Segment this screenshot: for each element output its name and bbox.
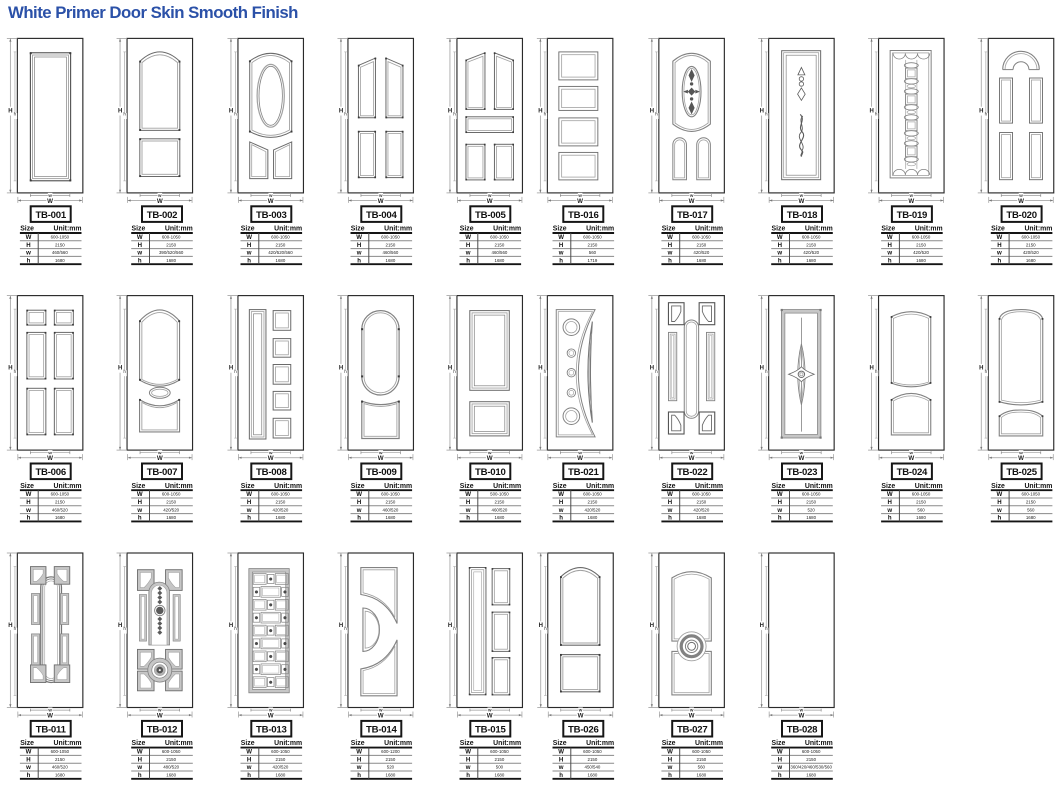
svg-text:H: H [357, 499, 361, 506]
svg-text:H: H [448, 108, 452, 114]
svg-text:Unit:mm: Unit:mm [695, 740, 723, 747]
svg-text:w: w [25, 764, 31, 771]
svg-text:2150: 2150 [166, 500, 176, 505]
svg-text:600-1050: 600-1050 [802, 492, 821, 497]
svg-text:Size: Size [991, 226, 1005, 233]
svg-text:Size: Size [241, 740, 255, 747]
svg-text:h: h [344, 112, 347, 117]
svg-text:H: H [466, 499, 470, 506]
svg-text:Unit:mm: Unit:mm [695, 226, 723, 233]
svg-text:W: W [246, 491, 252, 498]
svg-text:w: w [246, 764, 252, 771]
svg-text:W: W [997, 234, 1003, 241]
svg-text:1680: 1680 [696, 515, 706, 520]
svg-text:w: w [558, 507, 564, 514]
svg-text:h: h [888, 257, 892, 264]
svg-text:600-1050: 600-1050 [271, 492, 290, 497]
svg-text:420/520: 420/520 [803, 250, 819, 255]
svg-text:600-1050: 600-1050 [1021, 492, 1040, 497]
svg-text:Size: Size [241, 226, 255, 233]
svg-text:H: H [138, 242, 142, 249]
svg-text:w: w [356, 507, 362, 514]
svg-text:600-1050: 600-1050 [1021, 235, 1040, 240]
svg-text:h: h [655, 112, 658, 117]
svg-text:H: H [26, 499, 30, 506]
svg-text:2150: 2150 [588, 500, 598, 505]
svg-text:h: h [466, 257, 470, 264]
svg-text:H: H [760, 366, 764, 372]
svg-text:H: H [247, 756, 251, 763]
svg-text:w: w [558, 764, 564, 771]
svg-text:h: h [247, 515, 251, 522]
svg-text:Size: Size [662, 226, 676, 233]
svg-text:2150: 2150 [55, 757, 65, 762]
svg-text:H: H [138, 499, 142, 506]
svg-text:1680: 1680 [166, 258, 176, 263]
svg-text:600-1050: 600-1050 [381, 492, 400, 497]
svg-text:W: W [356, 234, 362, 241]
svg-text:h: h [138, 515, 142, 522]
svg-text:w: w [667, 764, 673, 771]
svg-text:460/520: 460/520 [492, 507, 508, 512]
svg-text:Unit:mm: Unit:mm [493, 740, 521, 747]
svg-text:Unit:mm: Unit:mm [274, 226, 302, 233]
svg-text:420/520/560: 420/520/560 [268, 250, 293, 255]
svg-text:Unit:mm: Unit:mm [165, 483, 193, 490]
svg-text:W: W [558, 234, 564, 241]
svg-text:W: W [268, 713, 274, 720]
svg-text:Unit:mm: Unit:mm [805, 226, 833, 233]
svg-text:W: W [47, 198, 53, 205]
svg-text:h: h [544, 112, 547, 117]
svg-text:1680: 1680 [386, 515, 396, 520]
svg-text:W: W [356, 491, 362, 498]
svg-text:H: H [979, 366, 983, 372]
svg-text:H: H [668, 756, 672, 763]
svg-text:2150: 2150 [588, 757, 598, 762]
svg-text:Size: Size [662, 740, 676, 747]
svg-text:h: h [14, 369, 17, 374]
svg-text:h: h [875, 369, 878, 374]
svg-text:460/560: 460/560 [52, 250, 68, 255]
svg-text:W: W [487, 713, 493, 720]
svg-text:H: H [466, 242, 470, 249]
svg-text:H: H [778, 242, 782, 249]
svg-text:w: w [356, 250, 362, 257]
svg-text:W: W [26, 749, 32, 756]
svg-text:1680: 1680 [1026, 515, 1036, 520]
svg-text:W: W [268, 198, 274, 205]
svg-text:H: H [247, 242, 251, 249]
svg-text:w: w [776, 764, 782, 771]
svg-text:H: H [448, 623, 452, 629]
svg-text:TB-009: TB-009 [366, 467, 397, 478]
svg-text:2150: 2150 [276, 757, 286, 762]
svg-text:600-1050: 600-1050 [802, 749, 821, 754]
svg-text:460/560: 460/560 [492, 250, 508, 255]
svg-text:1680: 1680 [916, 515, 926, 520]
svg-text:h: h [27, 515, 31, 522]
svg-text:H: H [538, 108, 542, 114]
svg-text:H: H [887, 499, 891, 506]
svg-text:h: h [765, 626, 768, 631]
svg-text:Size: Size [132, 740, 146, 747]
svg-text:520: 520 [387, 765, 395, 770]
svg-text:H: H [357, 756, 361, 763]
svg-text:500: 500 [496, 765, 504, 770]
svg-text:1680: 1680 [55, 515, 65, 520]
svg-text:w: w [776, 250, 782, 257]
svg-text:H: H [247, 499, 251, 506]
svg-text:W: W [356, 749, 362, 756]
svg-text:H: H [559, 242, 563, 249]
svg-text:w: w [246, 507, 252, 514]
svg-text:W: W [487, 198, 493, 205]
svg-text:480/520: 480/520 [163, 765, 179, 770]
svg-text:2150: 2150 [386, 500, 396, 505]
svg-text:h: h [668, 772, 672, 779]
svg-text:H: H [668, 499, 672, 506]
svg-text:2150: 2150 [588, 242, 598, 247]
svg-text:420/520: 420/520 [1023, 250, 1039, 255]
svg-text:TB-013: TB-013 [256, 724, 287, 735]
svg-text:H: H [357, 242, 361, 249]
svg-text:2150: 2150 [916, 242, 926, 247]
svg-text:H: H [229, 108, 233, 114]
svg-text:H: H [448, 366, 452, 372]
svg-text:h: h [138, 257, 142, 264]
svg-text:h: h [453, 112, 456, 117]
svg-text:h: h [453, 369, 456, 374]
svg-text:Size: Size [351, 740, 365, 747]
svg-text:TB-025: TB-025 [1006, 467, 1037, 478]
svg-text:2150: 2150 [696, 242, 706, 247]
svg-text:W: W [689, 713, 695, 720]
svg-text:TB-020: TB-020 [1006, 210, 1037, 221]
svg-text:420/520: 420/520 [693, 250, 709, 255]
svg-text:420/520: 420/520 [273, 507, 289, 512]
svg-text:H: H [887, 242, 891, 249]
svg-text:h: h [998, 515, 1002, 522]
svg-text:h: h [765, 369, 768, 374]
svg-text:W: W [577, 198, 583, 205]
svg-text:Unit:mm: Unit:mm [695, 483, 723, 490]
svg-text:h: h [778, 257, 782, 264]
svg-text:TB-003: TB-003 [256, 210, 287, 221]
svg-text:420/520: 420/520 [913, 250, 929, 255]
svg-text:390/520/560: 390/520/560 [159, 250, 184, 255]
svg-text:TB-028: TB-028 [787, 724, 818, 735]
svg-text:Size: Size [460, 740, 474, 747]
svg-text:1680: 1680 [386, 258, 396, 263]
svg-text:h: h [466, 772, 470, 779]
svg-text:Unit:mm: Unit:mm [915, 483, 943, 490]
svg-text:h: h [668, 257, 672, 264]
svg-text:600-1050: 600-1050 [692, 235, 711, 240]
svg-text:W: W [465, 491, 471, 498]
svg-text:TB-001: TB-001 [35, 210, 66, 221]
svg-text:Unit:mm: Unit:mm [274, 740, 302, 747]
svg-text:TB-021: TB-021 [568, 467, 599, 478]
svg-text:Size: Size [132, 226, 146, 233]
svg-text:h: h [985, 369, 988, 374]
svg-text:h: h [138, 772, 142, 779]
svg-text:h: h [466, 515, 470, 522]
svg-text:Unit:mm: Unit:mm [54, 226, 82, 233]
svg-text:W: W [268, 455, 274, 462]
svg-text:2150: 2150 [916, 500, 926, 505]
svg-text:w: w [886, 250, 892, 257]
svg-text:H: H [997, 242, 1001, 249]
svg-text:w: w [996, 250, 1002, 257]
svg-text:W: W [465, 749, 471, 756]
svg-text:Size: Size [772, 483, 786, 490]
svg-text:H: H [118, 108, 122, 114]
svg-text:h: h [357, 515, 361, 522]
svg-text:W: W [667, 749, 673, 756]
svg-text:w: w [886, 507, 892, 514]
svg-text:H: H [760, 108, 764, 114]
svg-text:W: W [887, 491, 893, 498]
svg-text:h: h [234, 112, 237, 117]
svg-text:h: h [357, 772, 361, 779]
svg-text:1680: 1680 [806, 258, 816, 263]
svg-text:W: W [137, 491, 143, 498]
svg-text:h: h [778, 515, 782, 522]
svg-text:W: W [137, 749, 143, 756]
svg-text:2150: 2150 [806, 757, 816, 762]
svg-text:Unit:mm: Unit:mm [915, 226, 943, 233]
svg-text:h: h [123, 112, 126, 117]
svg-text:TB-027: TB-027 [677, 724, 708, 735]
svg-text:W: W [777, 491, 783, 498]
svg-text:2150: 2150 [166, 757, 176, 762]
svg-text:TB-022: TB-022 [677, 467, 708, 478]
svg-text:w: w [136, 507, 142, 514]
svg-text:2150: 2150 [166, 242, 176, 247]
svg-text:H: H [539, 623, 543, 629]
svg-text:H: H [118, 623, 122, 629]
svg-text:TB-014: TB-014 [366, 724, 397, 735]
svg-text:W: W [137, 234, 143, 241]
svg-text:2150: 2150 [386, 242, 396, 247]
svg-text:h: h [123, 369, 126, 374]
svg-text:H: H [869, 366, 873, 372]
svg-text:w: w [465, 250, 471, 257]
svg-text:W: W [798, 455, 804, 462]
svg-text:560: 560 [589, 250, 597, 255]
svg-text:w: w [356, 764, 362, 771]
svg-text:H: H [997, 499, 1001, 506]
svg-text:W: W [667, 491, 673, 498]
svg-text:2150: 2150 [276, 242, 286, 247]
svg-text:H: H [138, 756, 142, 763]
svg-text:2150: 2150 [386, 757, 396, 762]
svg-text:Size: Size [991, 483, 1005, 490]
svg-text:W: W [157, 198, 163, 205]
svg-text:600-1050: 600-1050 [162, 235, 181, 240]
svg-text:w: w [25, 507, 31, 514]
svg-text:h: h [655, 626, 658, 631]
svg-text:W: W [777, 234, 783, 241]
svg-text:W: W [1018, 455, 1024, 462]
svg-text:W: W [997, 491, 1003, 498]
svg-text:W: W [887, 234, 893, 241]
svg-text:2150: 2150 [495, 242, 505, 247]
svg-text:h: h [234, 369, 237, 374]
svg-text:Unit:mm: Unit:mm [165, 740, 193, 747]
svg-text:600-1200: 600-1200 [381, 749, 400, 754]
svg-text:h: h [27, 772, 31, 779]
svg-text:Size: Size [351, 226, 365, 233]
svg-text:h: h [544, 369, 547, 374]
svg-text:H: H [26, 242, 30, 249]
svg-text:w: w [246, 250, 252, 257]
svg-text:W: W [798, 713, 804, 720]
svg-text:TB-016: TB-016 [568, 210, 599, 221]
svg-text:h: h [668, 515, 672, 522]
svg-text:H: H [229, 366, 233, 372]
svg-text:W: W [689, 198, 695, 205]
svg-text:1680: 1680 [495, 258, 505, 263]
svg-text:H: H [229, 623, 233, 629]
svg-text:460/520: 460/520 [383, 507, 399, 512]
svg-text:1680: 1680 [806, 515, 816, 520]
svg-text:W: W [378, 713, 384, 720]
svg-text:TB-026: TB-026 [568, 724, 599, 735]
svg-text:H: H [650, 366, 654, 372]
svg-text:Unit:mm: Unit:mm [586, 483, 614, 490]
svg-text:H: H [650, 108, 654, 114]
svg-text:h: h [123, 626, 126, 631]
svg-text:W: W [378, 198, 384, 205]
svg-text:Size: Size [772, 226, 786, 233]
svg-text:Size: Size [772, 740, 786, 747]
svg-text:W: W [558, 749, 564, 756]
svg-text:Size: Size [553, 483, 567, 490]
svg-text:360/420/460/530/560: 360/420/460/530/560 [790, 765, 832, 770]
svg-text:H: H [8, 623, 12, 629]
svg-text:600-1050: 600-1050 [583, 492, 602, 497]
svg-text:600-1050: 600-1050 [162, 749, 181, 754]
svg-text:W: W [378, 455, 384, 462]
svg-text:Size: Size [553, 740, 567, 747]
svg-text:Unit:mm: Unit:mm [805, 483, 833, 490]
svg-text:600-1050: 600-1050 [271, 749, 290, 754]
svg-text:TB-010: TB-010 [475, 467, 506, 478]
svg-text:1680: 1680 [495, 515, 505, 520]
svg-text:TB-005: TB-005 [475, 210, 506, 221]
svg-text:TB-011: TB-011 [36, 724, 67, 735]
svg-text:w: w [25, 250, 31, 257]
svg-text:w: w [558, 250, 564, 257]
svg-text:1680: 1680 [276, 258, 286, 263]
svg-text:2150: 2150 [276, 500, 286, 505]
svg-text:2150: 2150 [696, 757, 706, 762]
svg-text:600-1050: 600-1050 [583, 749, 602, 754]
svg-text:TB-004: TB-004 [366, 210, 397, 221]
svg-text:W: W [157, 713, 163, 720]
svg-text:460/520: 460/520 [52, 765, 68, 770]
svg-text:2150: 2150 [806, 500, 816, 505]
svg-text:W: W [689, 455, 695, 462]
svg-text:1680: 1680 [55, 773, 65, 778]
svg-text:600-1050: 600-1050 [692, 749, 711, 754]
svg-text:TB-018: TB-018 [787, 210, 818, 221]
svg-text:w: w [465, 507, 471, 514]
svg-text:460/520: 460/520 [52, 507, 68, 512]
svg-text:W: W [246, 234, 252, 241]
svg-text:Size: Size [881, 483, 895, 490]
svg-text:Size: Size [662, 483, 676, 490]
svg-text:Unit:mm: Unit:mm [54, 483, 82, 490]
svg-text:560: 560 [698, 765, 706, 770]
svg-text:W: W [47, 713, 53, 720]
svg-text:H: H [778, 499, 782, 506]
svg-text:600-1050: 600-1050 [912, 235, 931, 240]
svg-text:Unit:mm: Unit:mm [493, 226, 521, 233]
svg-text:h: h [234, 626, 237, 631]
svg-text:w: w [667, 250, 673, 257]
svg-text:Unit:mm: Unit:mm [274, 483, 302, 490]
svg-text:h: h [344, 369, 347, 374]
svg-text:1680: 1680 [1026, 258, 1036, 263]
svg-text:Size: Size [132, 483, 146, 490]
svg-text:600-1050: 600-1050 [490, 749, 509, 754]
svg-text:w: w [996, 507, 1002, 514]
svg-text:h: h [559, 515, 563, 522]
svg-text:H: H [118, 366, 122, 372]
svg-text:1719: 1719 [588, 258, 598, 263]
svg-text:W: W [26, 234, 32, 241]
svg-text:H: H [668, 242, 672, 249]
svg-text:1680: 1680 [806, 773, 816, 778]
svg-text:H: H [8, 108, 12, 114]
svg-text:Unit:mm: Unit:mm [165, 226, 193, 233]
svg-text:H: H [466, 756, 470, 763]
svg-text:2150: 2150 [1026, 242, 1036, 247]
svg-text:h: h [765, 112, 768, 117]
svg-text:TB-024: TB-024 [897, 467, 928, 478]
svg-text:W: W [558, 491, 564, 498]
svg-text:W: W [487, 455, 493, 462]
svg-text:H: H [650, 623, 654, 629]
svg-text:w: w [136, 764, 142, 771]
svg-text:H: H [979, 108, 983, 114]
svg-text:2150: 2150 [696, 500, 706, 505]
svg-text:TB-015: TB-015 [475, 724, 506, 735]
svg-text:h: h [888, 515, 892, 522]
svg-text:TB-017: TB-017 [677, 210, 708, 221]
svg-text:1680: 1680 [588, 515, 598, 520]
svg-text:1680: 1680 [696, 258, 706, 263]
svg-text:h: h [27, 257, 31, 264]
svg-text:H: H [778, 756, 782, 763]
svg-text:h: h [985, 112, 988, 117]
svg-text:Size: Size [351, 483, 365, 490]
svg-text:2150: 2150 [55, 242, 65, 247]
svg-text:TB-008: TB-008 [256, 467, 287, 478]
svg-text:1680: 1680 [276, 773, 286, 778]
svg-text:Unit:mm: Unit:mm [384, 226, 412, 233]
svg-text:W: W [798, 198, 804, 205]
svg-text:W: W [26, 491, 32, 498]
svg-text:W: W [777, 749, 783, 756]
svg-text:W: W [47, 455, 53, 462]
svg-text:Unit:mm: Unit:mm [493, 483, 521, 490]
svg-text:w: w [465, 764, 471, 771]
svg-text:560: 560 [1027, 507, 1035, 512]
